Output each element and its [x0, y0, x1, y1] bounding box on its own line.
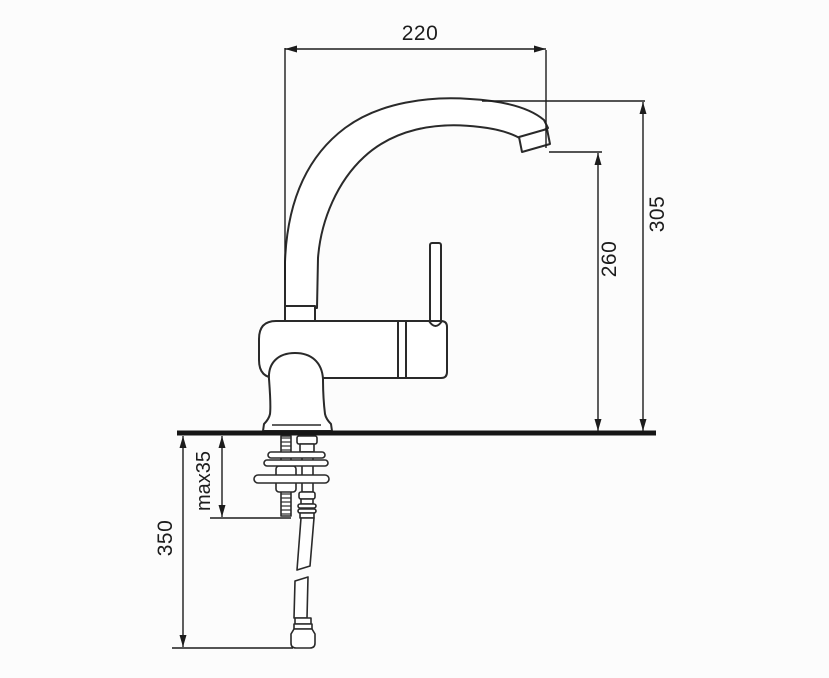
arrowhead-up — [640, 102, 647, 114]
dim-label-below-deck-length: 350 — [154, 520, 177, 557]
technical-drawing-canvas: 220 305 260 350 — [0, 0, 829, 678]
arrowhead-down — [640, 419, 647, 431]
hose-end-collar — [295, 618, 311, 624]
arrowhead-down — [595, 419, 602, 431]
dimension-outlet-height: 260 — [549, 152, 621, 431]
faucet — [259, 98, 550, 431]
washer-plate — [268, 452, 325, 458]
faucet-spout — [285, 98, 548, 308]
under-counter-assembly — [254, 436, 329, 648]
faucet-handle-lever — [430, 243, 441, 323]
hose-top-fitting — [300, 444, 314, 452]
arrowhead-right — [534, 46, 546, 53]
spout-connector-ring — [285, 306, 315, 322]
dim-label-max-deck-thickness: max35 — [193, 451, 215, 511]
dim-label-spout-reach: 220 — [402, 22, 439, 45]
hose-lower-section — [294, 577, 308, 618]
hose-mid-fitting — [298, 504, 316, 508]
arrowhead-left — [285, 46, 297, 53]
faucet-diagram-svg: 220 305 260 350 — [0, 0, 829, 678]
hose-end-nut — [291, 629, 315, 648]
hose-upper-section — [297, 518, 314, 570]
dimension-below-deck-length: 350 — [154, 436, 293, 648]
arrowhead-up — [595, 153, 602, 165]
washer-plate — [254, 475, 329, 483]
dim-label-outlet-height: 260 — [598, 241, 621, 278]
arrowhead-up — [219, 436, 226, 448]
arrowhead-up — [180, 436, 187, 448]
hose-mid-fitting — [299, 492, 315, 499]
hose-top-fitting — [297, 436, 317, 444]
arrowhead-down — [180, 635, 187, 647]
dimension-total-height: 305 — [482, 101, 669, 431]
washer-plate — [264, 460, 328, 466]
dim-label-total-height: 305 — [646, 196, 669, 233]
arrowhead-down — [219, 505, 226, 517]
